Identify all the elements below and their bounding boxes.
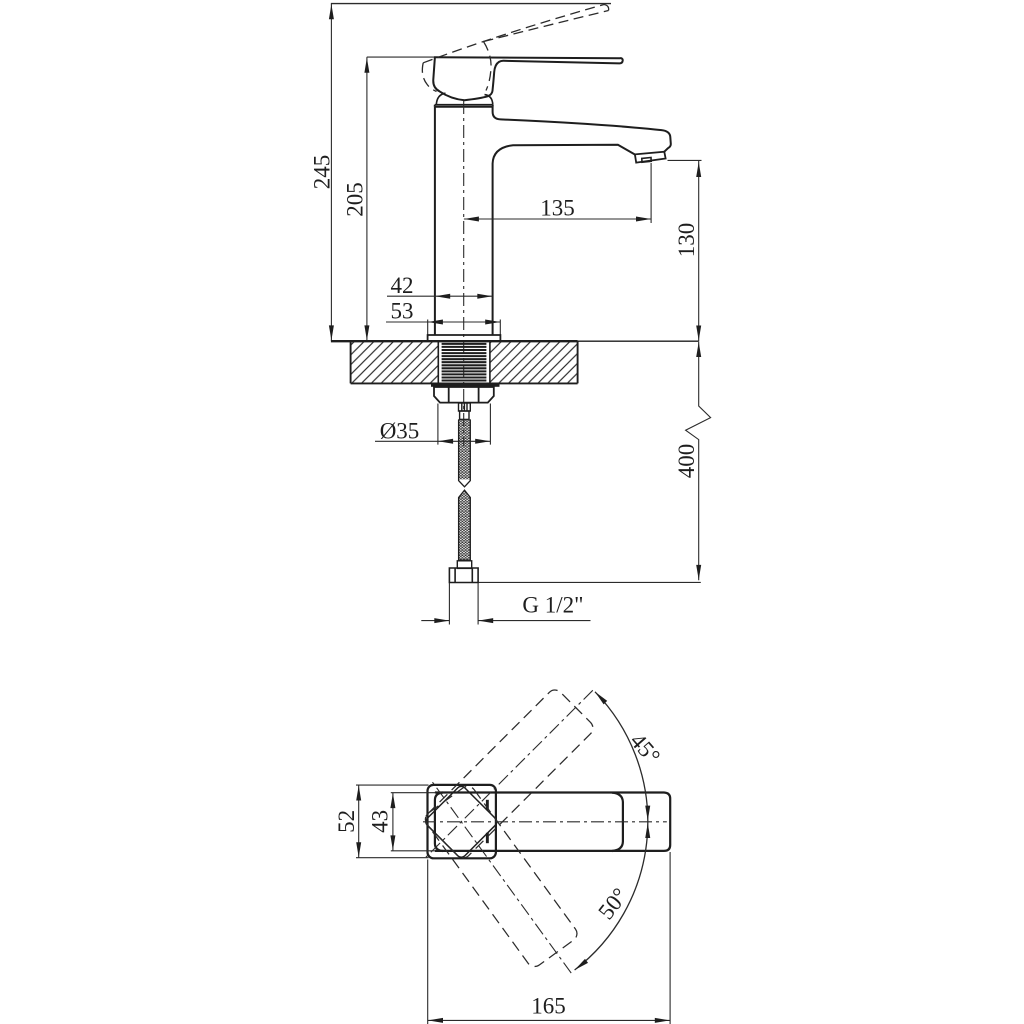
svg-text:52: 52 [334,810,359,833]
svg-text:Ø35: Ø35 [380,419,420,444]
svg-text:53: 53 [391,299,414,324]
svg-text:50°: 50° [593,883,633,924]
svg-text:245: 245 [310,155,335,190]
svg-text:135: 135 [540,196,575,221]
svg-text:45°: 45° [625,728,665,769]
svg-text:G 1/2": G 1/2" [522,593,583,618]
svg-text:205: 205 [343,182,368,217]
svg-text:130: 130 [674,223,699,258]
svg-text:43: 43 [367,810,392,833]
svg-text:165: 165 [531,994,566,1019]
svg-text:400: 400 [674,444,699,479]
svg-text:42: 42 [391,273,414,298]
